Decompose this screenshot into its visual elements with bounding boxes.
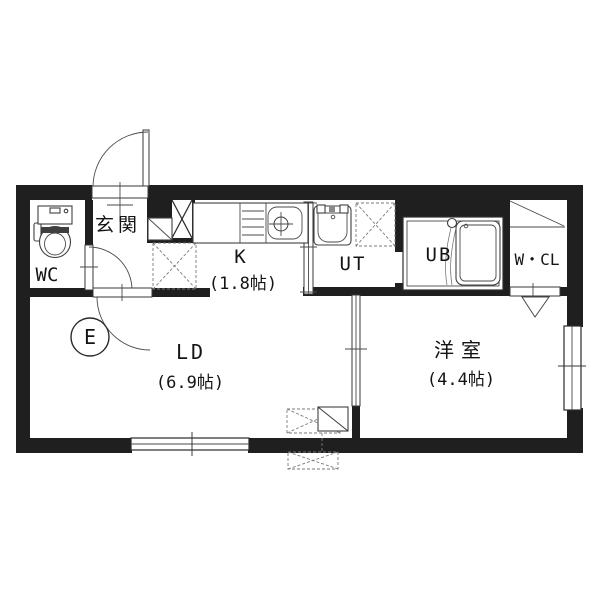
label-bedroom-size: (4.4帖) (427, 370, 495, 390)
wall-wcl-stub (560, 287, 568, 296)
entrance-door-leaf-open (143, 130, 149, 187)
wall-wc-bottom (30, 288, 94, 297)
sliding-door-ld-bedroom (345, 295, 367, 406)
label-ld: LD (176, 340, 206, 364)
label-ld-size: (6.9帖) (156, 373, 224, 393)
kitchen-counter (193, 203, 308, 243)
bathtub (456, 221, 500, 285)
label-ut: UT (340, 253, 367, 275)
label-bedroom: 洋室 (434, 338, 488, 362)
toilet (34, 206, 72, 258)
wall-wc-right (85, 200, 93, 248)
e-mark-label: E (84, 325, 96, 349)
label-ub: UB (426, 244, 453, 266)
label-wcl: W・CL (515, 250, 560, 269)
closet-shelf (510, 201, 565, 227)
washbasin (314, 205, 351, 245)
floor-plan: E 玄関 WC K (1.8帖) UT UB W・CL LD (6.9帖) 洋室… (0, 0, 600, 600)
closet-door (510, 283, 560, 317)
wall-left (16, 185, 30, 453)
label-kitchen-size: (1.8帖) (209, 274, 277, 294)
wall-bottom-left (16, 438, 132, 453)
circle-e-mark: E (71, 318, 109, 356)
wall-ub-top (395, 200, 510, 217)
refrigerator-space (153, 243, 196, 289)
wall-right-lower (567, 408, 583, 453)
wall-top-right (148, 185, 583, 200)
wall-ub-wcl (503, 185, 510, 296)
wall-right-upper (567, 185, 583, 327)
ac-outdoor-unit (288, 452, 338, 469)
label-kitchen: K (234, 246, 246, 268)
wc-door (80, 245, 132, 290)
window-ld (131, 432, 249, 456)
wall-ut-ub-stub (395, 283, 403, 290)
wall-kitchen-bottom (152, 288, 210, 297)
bathroom (403, 217, 503, 290)
pillar-cross (172, 200, 192, 238)
shoe-cabinet (148, 218, 172, 240)
label-wc: WC (36, 264, 59, 286)
wall-partition-lower (352, 405, 360, 438)
label-genkan: 玄関 (95, 214, 141, 236)
entrance-door-arc (93, 132, 148, 187)
washing-machine-space (356, 203, 395, 246)
entrance-door (92, 130, 149, 222)
wall-bottom-right (248, 438, 583, 453)
window-bedroom (558, 326, 586, 410)
floor-plan-canvas: E 玄関 WC K (1.8帖) UT UB W・CL LD (6.9帖) 洋室… (0, 0, 600, 600)
